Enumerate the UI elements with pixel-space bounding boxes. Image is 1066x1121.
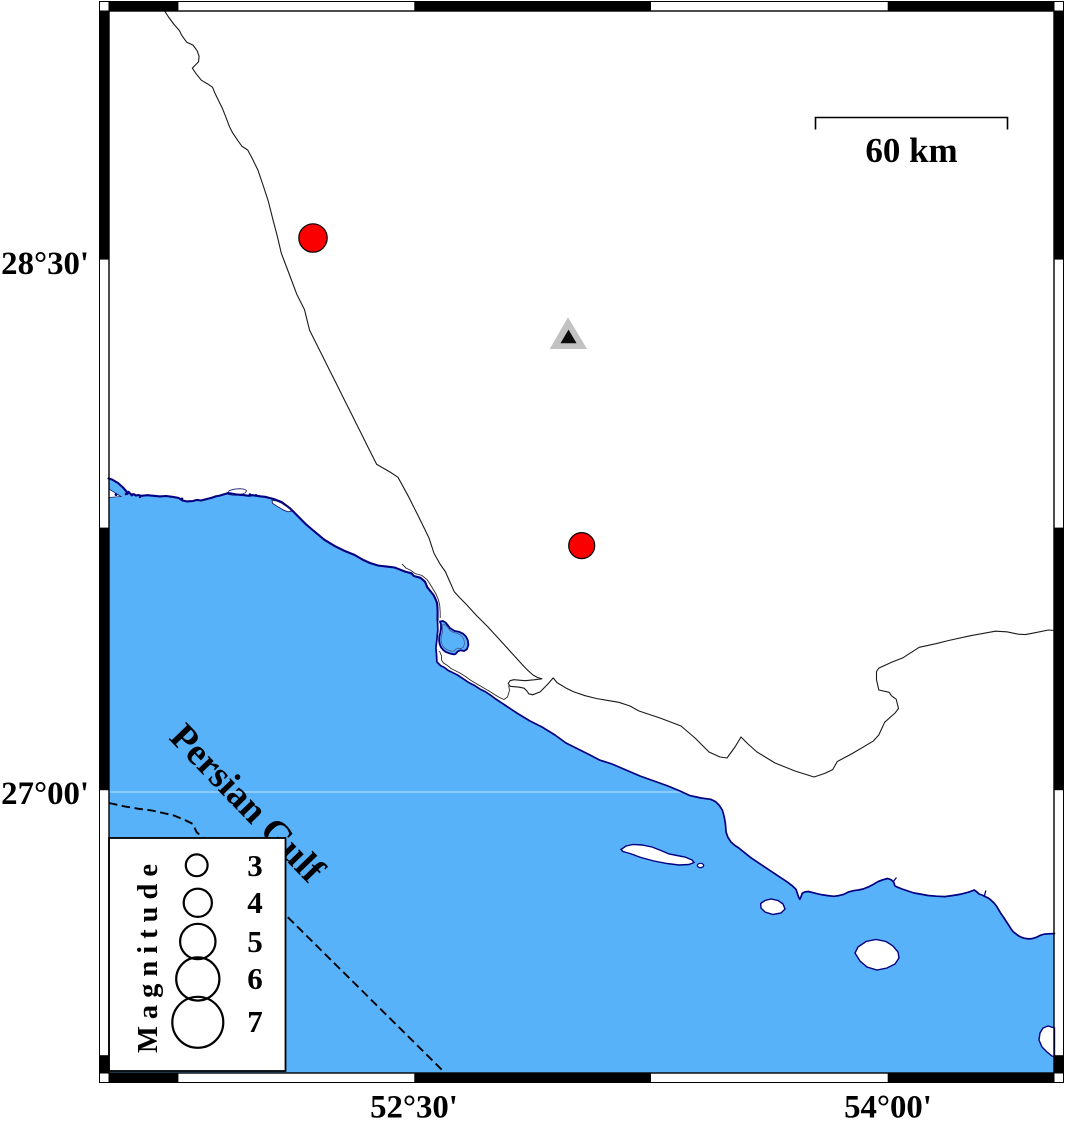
svg-text:54°00': 54°00' [844, 1090, 932, 1121]
svg-text:Magnitude: Magnitude [133, 857, 164, 1053]
svg-text:52°30': 52°30' [370, 1090, 458, 1121]
svg-text:28°30': 28°30' [1, 246, 89, 282]
svg-text:7: 7 [247, 1004, 263, 1039]
svg-text:27°00': 27°00' [1, 776, 89, 812]
svg-text:3: 3 [247, 848, 263, 883]
svg-text:5: 5 [247, 924, 263, 959]
svg-text:6: 6 [247, 961, 263, 996]
svg-text:60 km: 60 km [865, 131, 957, 170]
svg-text:4: 4 [247, 885, 263, 920]
